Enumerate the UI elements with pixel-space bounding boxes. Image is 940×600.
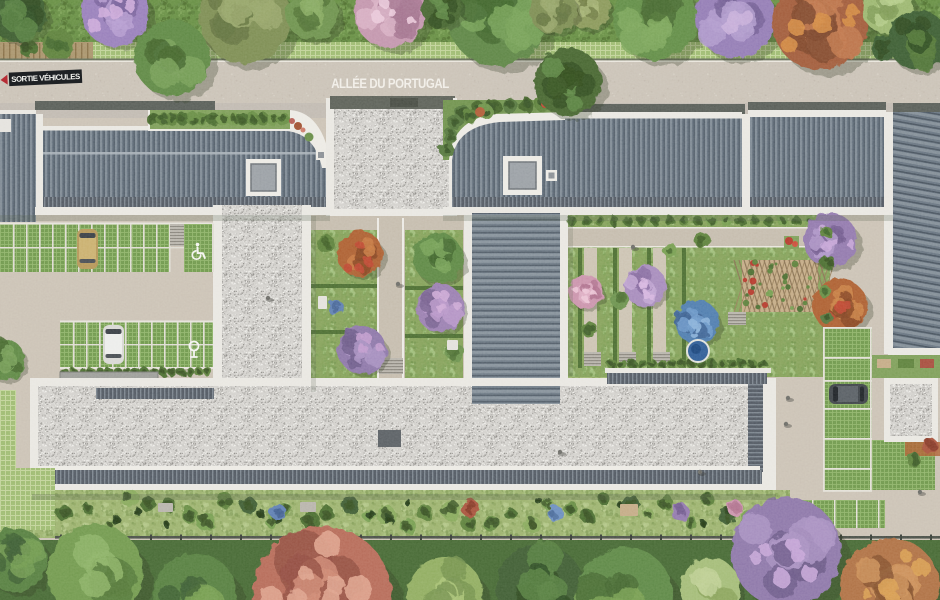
svg-text:ALLÉE DU PORTUGAL: ALLÉE DU PORTUGAL <box>331 75 449 91</box>
